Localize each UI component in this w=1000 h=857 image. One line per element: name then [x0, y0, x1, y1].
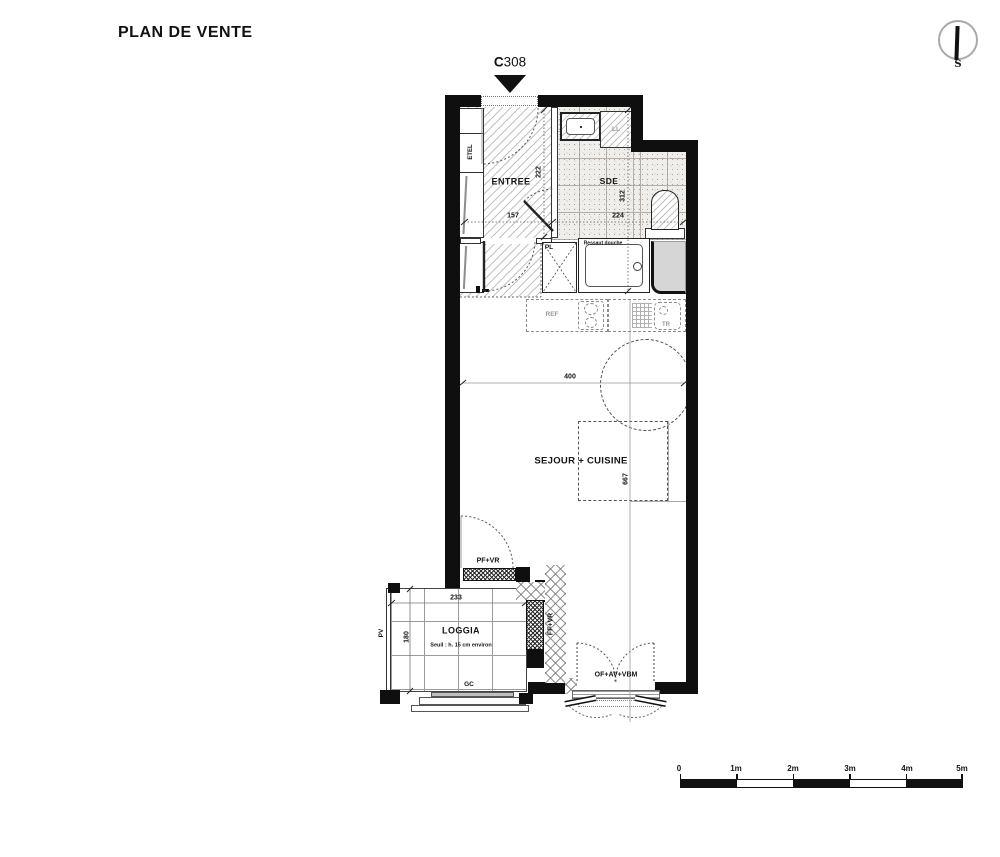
label-etel: ETEL [468, 144, 474, 159]
label-glazed-screen: PV [379, 629, 386, 638]
shower-note: Ressaut douche [584, 242, 623, 247]
shutter-swing-arc [618, 706, 662, 718]
scale-label: 2m [787, 765, 799, 773]
dim-loggia-width: 233 [450, 595, 462, 602]
dim-sejour-width: 400 [564, 374, 576, 381]
shutter-swing-arc [569, 706, 613, 718]
room-label-entree: ENTREE [492, 178, 531, 187]
scale-bar-segments [680, 779, 963, 788]
room-label-sde: SDE [600, 177, 619, 186]
dim-sde-width: 224 [612, 213, 624, 220]
dim-entree-width: 157 [507, 213, 519, 220]
dim-sejour-height: 667 [623, 473, 630, 485]
label-sorting: TR [662, 322, 670, 328]
label-window-pf-vr: PF+VR [477, 558, 500, 565]
room-label-sejour: SEJOUR + CUISINE [534, 456, 627, 466]
scale-label: 1m [730, 765, 742, 773]
room-label-loggia: LOGGIA [442, 627, 480, 636]
loggia-threshold-note: Seuil : h. 15 cm environ [430, 643, 491, 649]
scale-label: 5m [956, 765, 968, 773]
scale-label: 4m [901, 765, 913, 773]
door-swing-arc [524, 189, 553, 201]
dim-ticks [388, 107, 688, 694]
label-washing-machine: LL [612, 127, 620, 134]
label-closet-pl: PL [545, 245, 553, 252]
door-swing-arc [484, 240, 535, 291]
label-french-door: OF+AV+VBM [595, 672, 638, 679]
scale-bar: 0 1m 2m 3m 4m 5m [660, 758, 980, 798]
door-swing-arc [482, 108, 538, 164]
label-window-ff-vr: FF+VR [548, 613, 555, 635]
scale-label: 3m [844, 765, 856, 773]
dim-sde-height: 312 [620, 190, 627, 202]
door-leaf [524, 201, 553, 231]
label-railing: GC [464, 682, 474, 689]
dim-entree-height: 222 [536, 166, 543, 178]
scale-label: 0 [677, 765, 681, 773]
dim-loggia-height: 180 [404, 631, 411, 643]
label-fridge: REF [546, 312, 559, 319]
plan-linework [0, 0, 1000, 857]
